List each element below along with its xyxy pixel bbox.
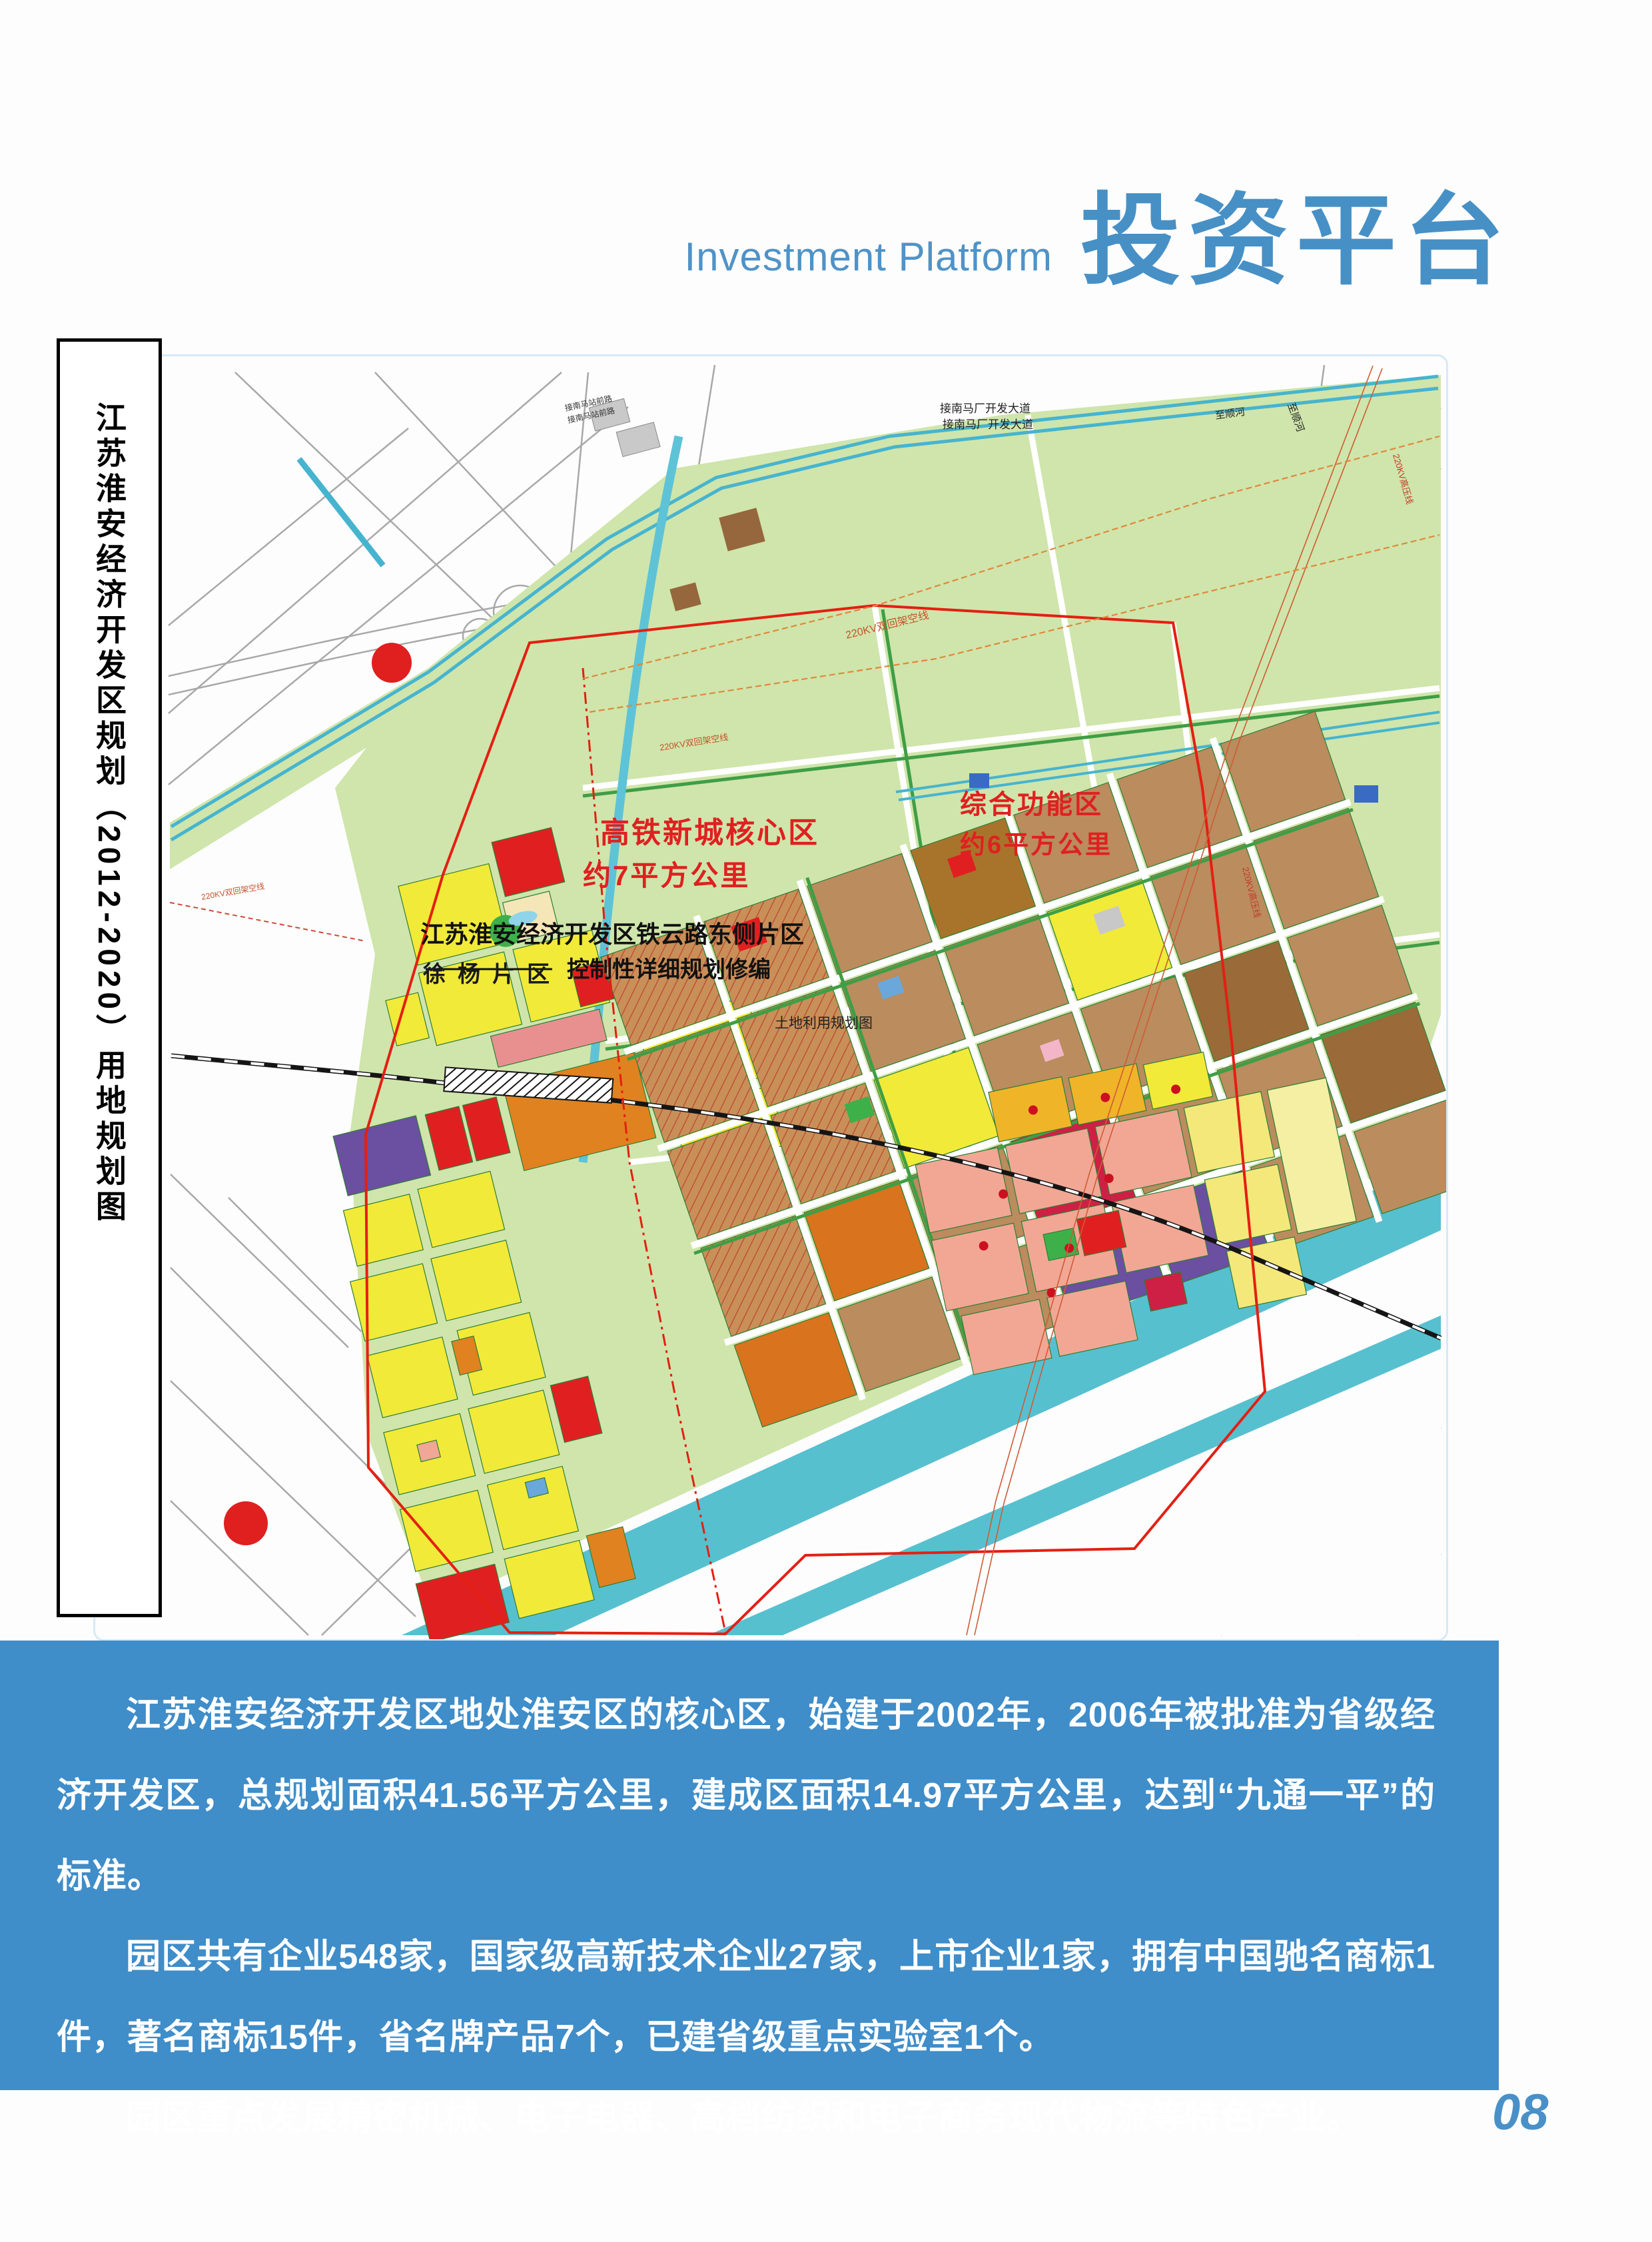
description-paragraph: 江苏淮安经济开发区地处淮安区的核心区，始建于2002年，2006年被批准为省级经… <box>57 1675 1436 1917</box>
plan-subtitle: 控制性详细规划修编 <box>567 957 771 982</box>
xuyang-district-label: 徐杨片区 <box>423 956 562 988</box>
page-header: Investment Platform 投资平台 <box>684 190 1512 290</box>
kv-line-label: 220KV双回架空线 <box>201 881 265 901</box>
header-title-en: Investment Platform <box>684 234 1052 290</box>
planning-map: 接南马厂开发大道 接南马厂开发大道 至顺河 至顺河 220KV双回架空线 220… <box>95 356 1446 1639</box>
road-name-label: 接南马厂开发大道 <box>940 402 1031 415</box>
plan-title: 江苏淮安经济开发区铁云路东侧片区 <box>420 921 804 948</box>
map-frame: 接南马厂开发大道 接南马厂开发大道 至顺河 至顺河 220KV双回架空线 220… <box>93 354 1448 1641</box>
side-title-box: 江苏淮安经济开发区规划（2012-2020）用地规划图 <box>57 338 162 1617</box>
core-zone-area: 约7平方公里 <box>583 860 750 891</box>
description-panel: 江苏淮安经济开发区地处淮安区的核心区，始建于2002年，2006年被批准为省级经… <box>0 1641 1499 2090</box>
func-zone-name: 综合功能区 <box>960 790 1103 819</box>
header-title-zh: 投资平台 <box>1080 190 1512 290</box>
road-name-label: 接南马厂开发大道 <box>943 418 1033 431</box>
description-paragraph: 园区重点发展精密机械、电子电器、高档纺织和电子商务现代物流等特色产业。 <box>57 2078 1436 2159</box>
xuyang-marker <box>372 643 412 683</box>
land-use-label: 土地利用规划图 <box>775 1016 873 1031</box>
side-title: 江苏淮安经济开发区规划（2012-2020）用地规划图 <box>87 402 131 1614</box>
func-zone-area: 约6平方公里 <box>960 831 1112 859</box>
description-paragraph: 园区共有企业548家，国家级高新技术企业27家，上市企业1家，拥有中国驰名商标1… <box>57 1917 1436 2078</box>
old-town-marker <box>224 1501 268 1545</box>
core-zone-name: 高铁新城核心区 <box>600 817 819 849</box>
page-number: 08 <box>1492 2083 1549 2141</box>
